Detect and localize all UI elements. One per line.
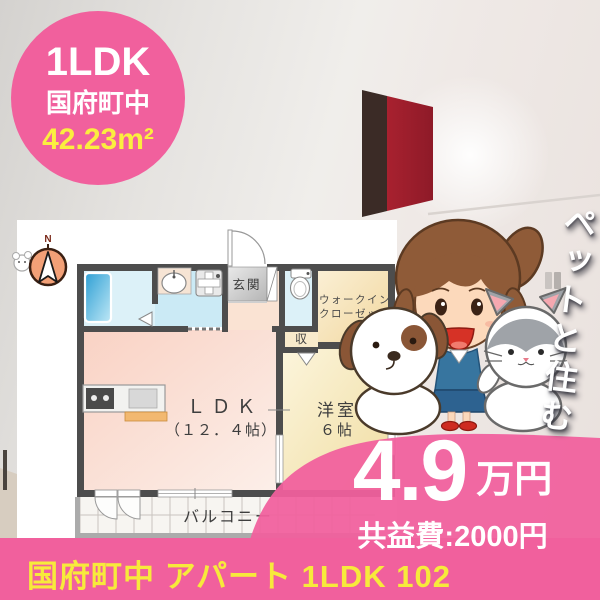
toilet (291, 269, 312, 299)
listing-promo-image: 玄関 ウォークイン クローゼット 収 (0, 0, 600, 600)
wic-label-line1: ウォークイン (319, 294, 391, 306)
washing-machine (196, 270, 222, 296)
floor-strip (0, 468, 17, 540)
badge-area: 42.23m² (42, 124, 154, 156)
ldk-size-label: （１２．４帖） (165, 422, 277, 439)
western-room-label: 洋室 (317, 401, 357, 420)
storage-label: 収 (295, 332, 307, 346)
genkan-area: 玄関 (228, 267, 277, 303)
eye (471, 299, 483, 316)
ldk-label: ＬＤＫ (186, 397, 261, 418)
rent-amount: 4.9 (353, 432, 467, 511)
property-badge: 1LDK 国府町中 42.23m² (11, 11, 185, 185)
rent-unit: 万円 (476, 448, 552, 503)
footer-caption: 国府町中 アパート 1LDK 102 (0, 551, 478, 596)
dark-wall-panel (362, 90, 387, 217)
compass-north-label: N (44, 234, 51, 245)
genkan-label: 玄関 (232, 277, 261, 292)
bathtub (85, 273, 111, 322)
badge-layout-type: 1LDK (46, 41, 150, 83)
eye (435, 299, 447, 316)
dog-nose (388, 351, 401, 361)
price-block: 4.9 万円 共益費:2000円 (330, 432, 575, 555)
red-wall-panel (387, 96, 433, 211)
common-fee: 共益費:2000円 (357, 513, 547, 555)
washbasin (158, 268, 191, 294)
badge-location: 国府町中 (46, 90, 150, 117)
wall-corner-line (3, 450, 7, 490)
